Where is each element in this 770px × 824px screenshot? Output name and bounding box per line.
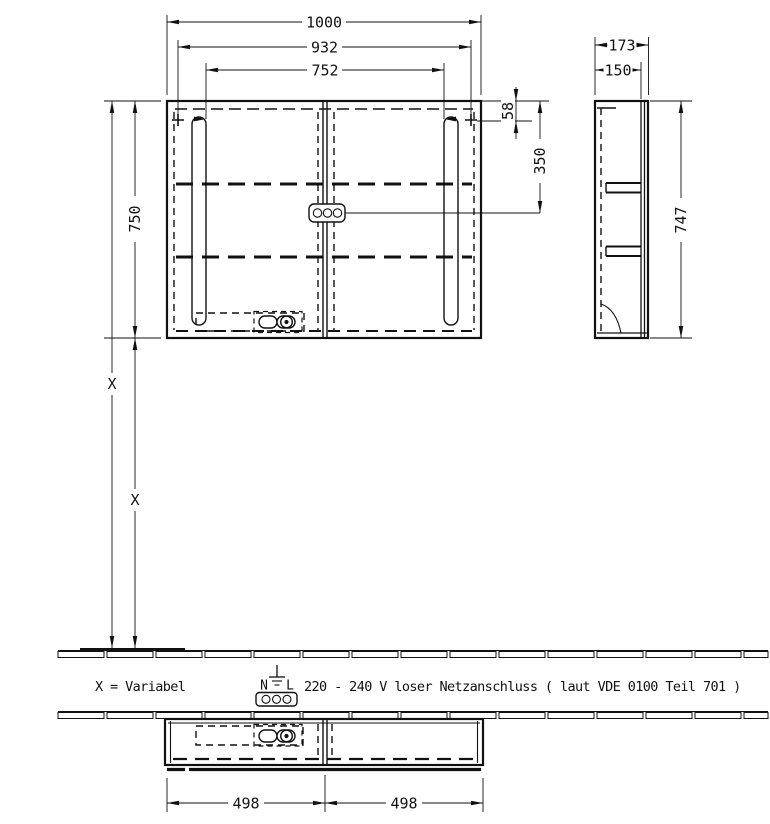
dim-side-height: 747 — [672, 206, 690, 233]
bottom-view — [165, 719, 483, 770]
dim-side-depth: 173 — [608, 37, 635, 55]
arrowhead — [538, 201, 543, 213]
dim-front-height: 750 — [126, 205, 144, 232]
mains-terminal-symbol: N L — [256, 665, 297, 706]
floor-hatch-segment — [156, 652, 202, 658]
arrowhead — [432, 68, 444, 73]
floor-hatch-segment — [499, 713, 545, 719]
floor-hatch-segment — [205, 713, 251, 719]
floor-hatch-segment — [254, 713, 300, 719]
socket-outlet-symbol — [259, 730, 277, 742]
switch-dot — [284, 734, 288, 738]
floor-hatch-upper — [58, 649, 768, 657]
socket-outlet-symbol — [259, 316, 277, 328]
technical-drawing-page: 1000 932 752 — [0, 0, 770, 824]
floor-hatch-segment — [303, 713, 349, 719]
floor-hatch-segment — [107, 713, 153, 719]
floor-hatch-segment — [58, 652, 104, 658]
floor-hatch-lower — [58, 712, 768, 719]
bottom-dimensions: 498 498 — [167, 775, 483, 813]
mounting-cross-right — [465, 114, 477, 126]
dim-front-socket-offset: 350 — [531, 147, 549, 174]
note-variable: X = Variabel — [95, 679, 185, 695]
arrowhead — [471, 801, 483, 806]
floor-hatch-segment — [254, 652, 300, 658]
arrowhead — [595, 43, 607, 48]
floor-hatch-segment — [107, 652, 153, 658]
dim-front-lights-spacing: 752 — [311, 62, 338, 80]
arrowhead — [133, 326, 138, 338]
arrowhead — [679, 101, 684, 113]
arrowhead — [110, 101, 115, 113]
door-swing-arc — [601, 304, 621, 333]
shelf-section-1 — [606, 183, 641, 193]
dim-bottom-left-half: 498 — [232, 795, 259, 813]
light-strip-right — [444, 117, 458, 325]
arrowhead — [110, 636, 115, 648]
arrowhead — [325, 801, 337, 806]
shelf-section-2 — [606, 247, 641, 257]
floor-hatch-segment — [744, 652, 768, 658]
arrowhead — [637, 43, 649, 48]
floor-hatch-segment — [450, 713, 496, 719]
arrowhead — [459, 45, 471, 50]
floor-hatch-segment — [548, 713, 594, 719]
floor-hatch-segment — [744, 713, 768, 719]
floor-hatch-segment — [401, 652, 447, 658]
arrowhead — [133, 338, 138, 350]
floor-hatch-segment — [597, 652, 643, 658]
side-view: 173 150 747 — [595, 37, 692, 339]
floor-hatch-segment — [450, 652, 496, 658]
dim-wall-distance-upper: X — [107, 375, 116, 393]
floor-hatch-segment — [548, 652, 594, 658]
floor-hatch-segment — [646, 713, 692, 719]
note-power: 220 - 240 V loser Netzanschluss ( laut V… — [304, 679, 741, 695]
terminal-hole — [283, 695, 291, 703]
arrowhead — [167, 20, 179, 25]
floor-hatch-segment — [597, 713, 643, 719]
light-strip-left — [192, 117, 206, 325]
floor-hatch-segment — [303, 652, 349, 658]
arrowhead — [538, 101, 543, 113]
left-dimensions: 750 X X — [104, 101, 161, 648]
dim-front-mount-offset: 58 — [499, 102, 517, 120]
notes-row: X = Variabel N L 220 - 240 V loser Netza… — [95, 665, 741, 706]
floor-hatch-segment — [352, 652, 398, 658]
dim-bottom-right-half: 498 — [390, 795, 417, 813]
arrowhead — [206, 68, 218, 73]
arrowhead — [133, 636, 138, 648]
arrowhead — [469, 20, 481, 25]
front-top-dimensions: 1000 932 752 — [167, 14, 481, 120]
arrowhead — [167, 801, 179, 806]
cabinet-outline-side — [595, 101, 648, 338]
floor-hatch-segment — [646, 652, 692, 658]
mirror-cabinet-drawing: 1000 932 752 — [0, 0, 770, 824]
floor-hatch-segment — [156, 713, 202, 719]
label-neutral: N — [260, 679, 268, 694]
label-line: L — [286, 679, 294, 694]
floor-hatch-segment — [205, 652, 251, 658]
switch-dot — [284, 320, 288, 324]
floor-hatch-segment — [695, 713, 741, 719]
front-view — [167, 101, 481, 338]
floor-hatch-segment — [401, 713, 447, 719]
arrowhead — [313, 801, 325, 806]
dim-wall-distance-lower: X — [130, 491, 139, 509]
dim-front-mounting-width: 932 — [311, 39, 338, 57]
floor-hatch-segment — [352, 713, 398, 719]
dim-side-body-depth: 150 — [604, 62, 631, 80]
power-socket-front — [309, 204, 345, 222]
right-dimensions: 58 350 — [345, 87, 549, 213]
terminal-hole — [273, 695, 281, 703]
arrowhead — [133, 101, 138, 113]
dim-front-overall-width: 1000 — [306, 14, 342, 32]
floor-hatch-segment — [695, 652, 741, 658]
arrowhead — [679, 326, 684, 338]
floor-hatch-segment — [58, 713, 104, 719]
floor-hatch-segment — [499, 652, 545, 658]
arrowhead — [178, 45, 190, 50]
terminal-hole — [262, 695, 270, 703]
